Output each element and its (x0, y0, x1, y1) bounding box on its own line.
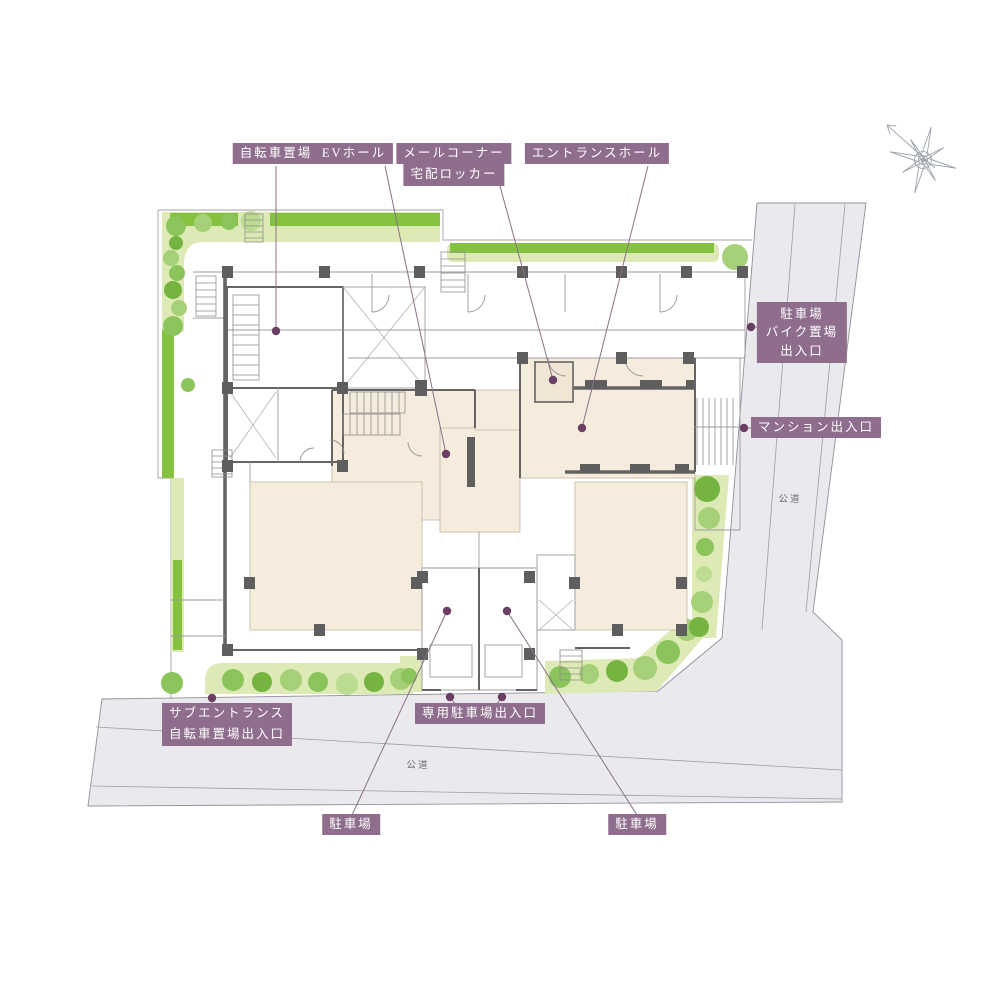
label-entrance-hall: エントランスホール (525, 143, 669, 164)
building-plan (171, 214, 748, 690)
label-parking-right: 駐車場 (608, 814, 666, 835)
bike-racks (233, 295, 259, 380)
compass-rose (882, 119, 964, 201)
label-parking-left: 駐車場 (322, 814, 380, 835)
road-label-bottom: 公道 (406, 757, 429, 771)
parking-garage-left (250, 482, 422, 630)
entrance-steps (697, 398, 733, 465)
parking-garage-right (575, 482, 687, 630)
exterior-stair-left (196, 276, 216, 316)
site-plan-page: 自転車置場 EVホール メールコーナー 宅配ロッカー エントランスホール 駐車場… (0, 0, 1000, 1000)
bicycle-parking-room (227, 287, 343, 388)
road-label-right: 公道 (778, 491, 801, 505)
label-private-parking-entrance: 専用駐車場出入口 (415, 703, 545, 724)
label-mansion-entrance: マンション出入口 (751, 417, 881, 438)
label-mail-corner: メールコーナー 宅配ロッカー (396, 143, 511, 186)
label-ev-hall: EVホール (315, 143, 393, 164)
label-sub-entrance: サブエントランス 自転車置場出入口 (162, 703, 292, 746)
label-bicycle-parking: 自転車置場 (233, 143, 320, 164)
label-parking-bike-entrance: 駐車場 バイク置場 出入口 (757, 302, 847, 363)
